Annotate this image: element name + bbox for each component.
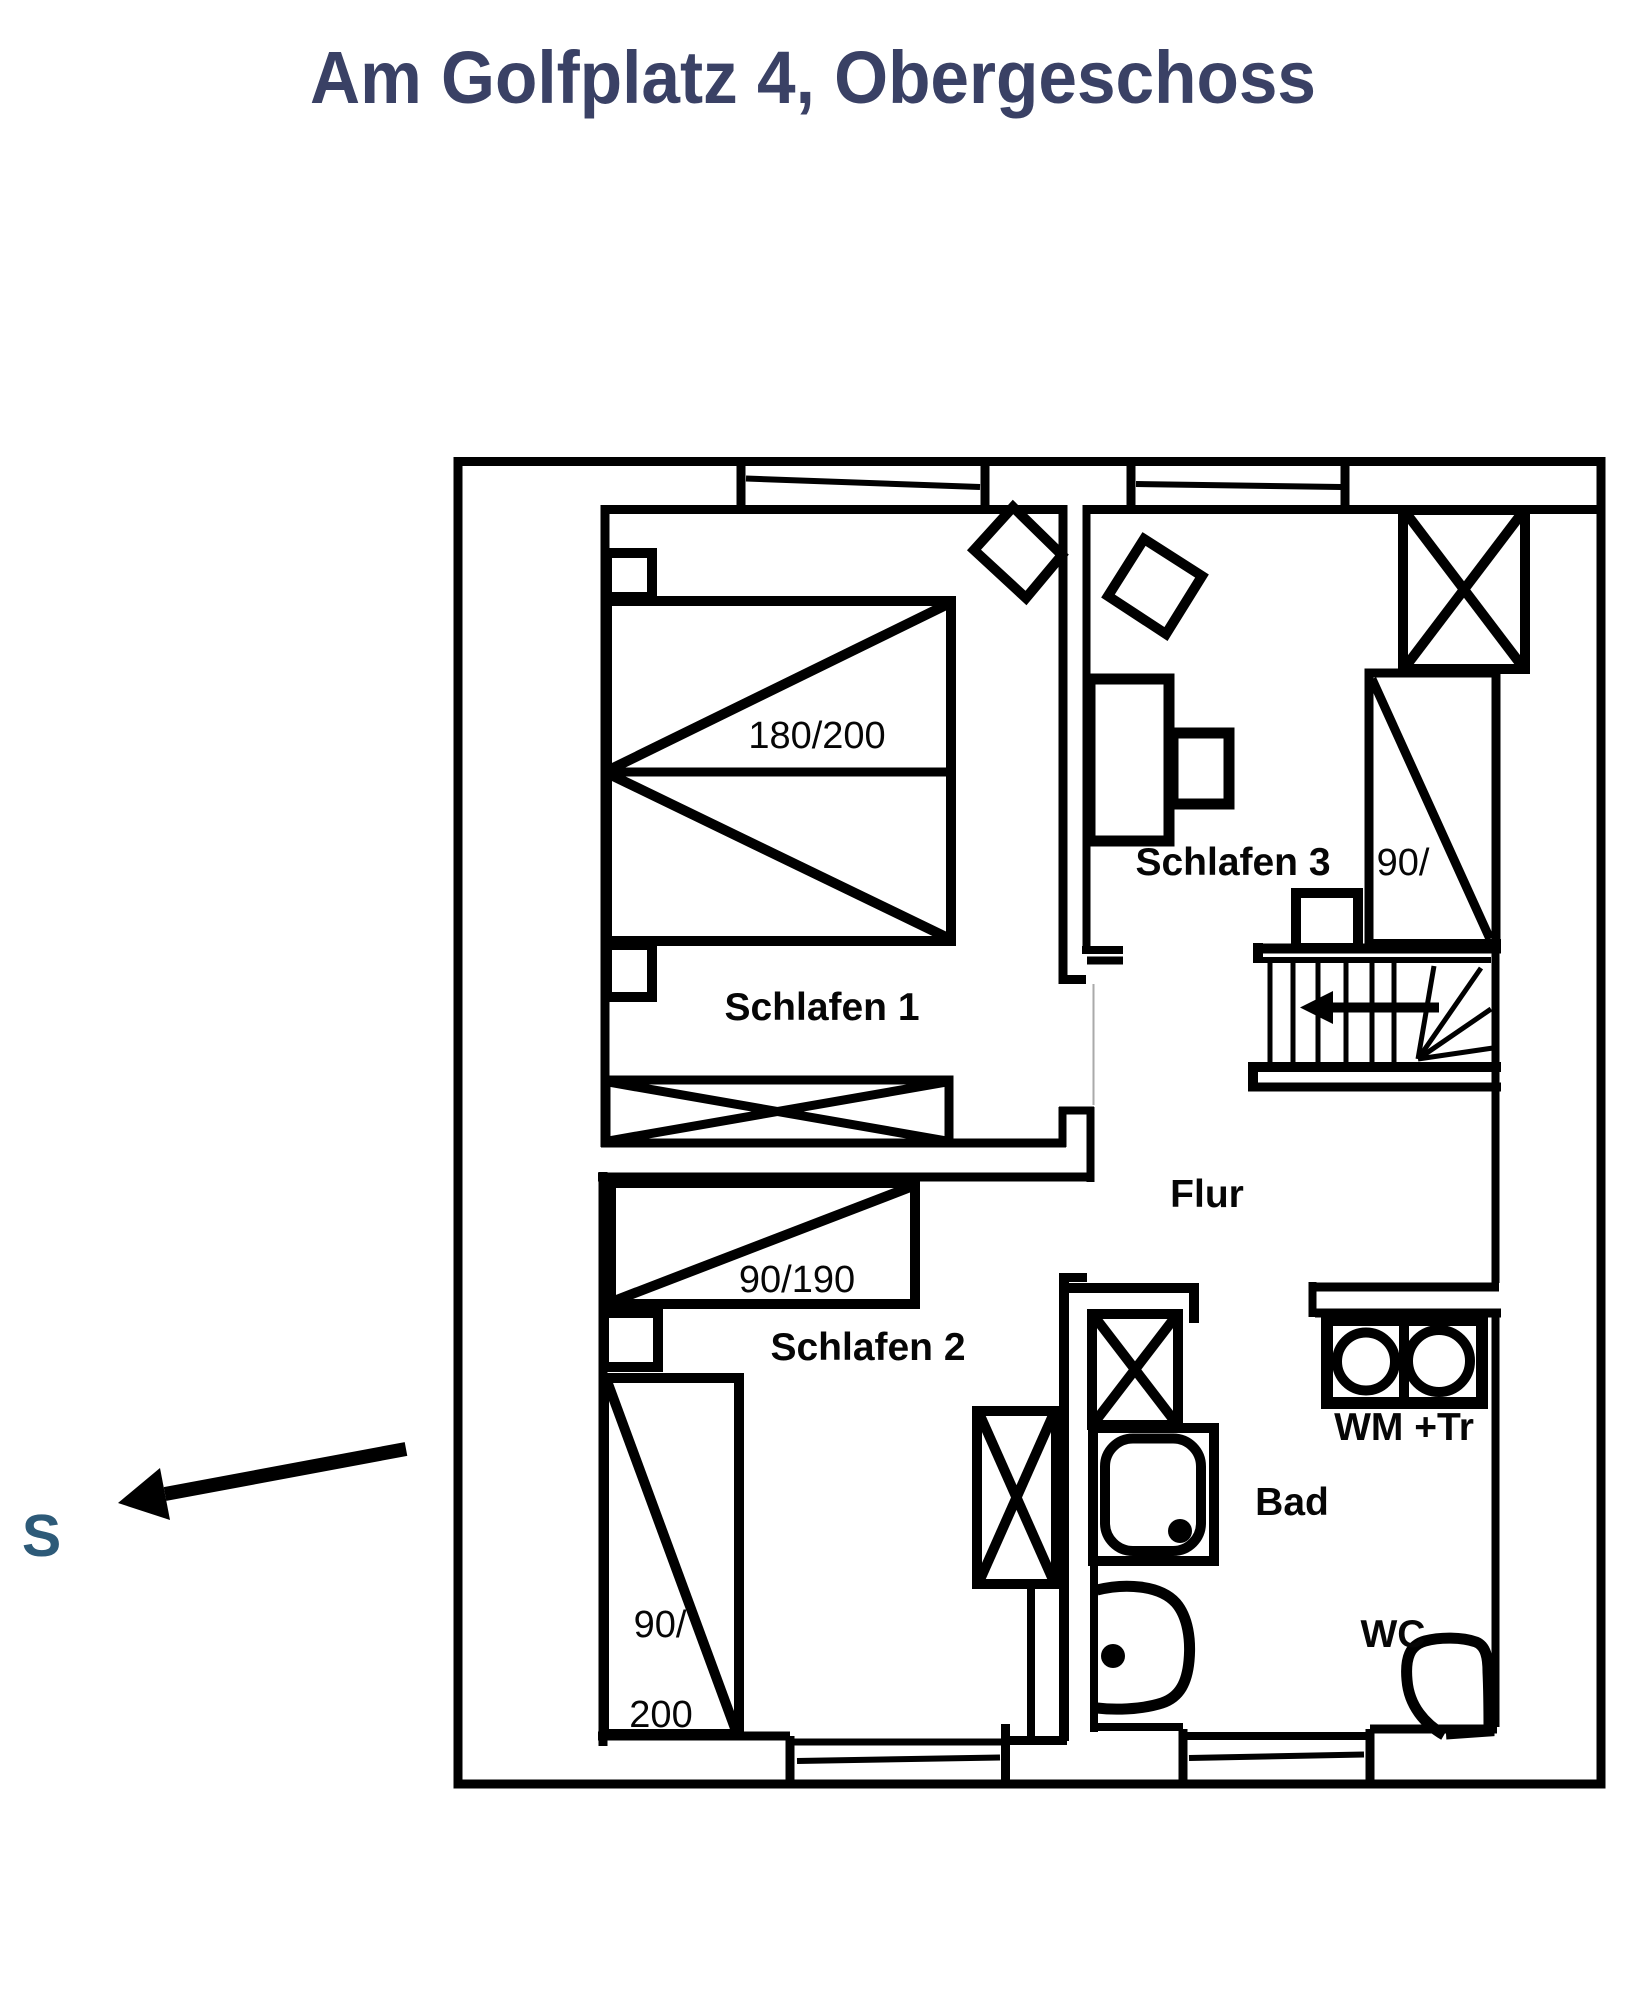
svg-text:Schlafen 3: Schlafen 3: [1135, 841, 1330, 884]
svg-text:Schlafen 1: Schlafen 1: [724, 986, 919, 1029]
svg-text:Schlafen 2: Schlafen 2: [770, 1326, 965, 1369]
svg-text:WM +Tr: WM +Tr: [1334, 1406, 1474, 1449]
svg-text:180/200: 180/200: [748, 715, 885, 757]
svg-text:90/: 90/: [1377, 842, 1430, 884]
svg-text:Am Golfplatz 4, Obergeschoss: Am Golfplatz 4, Obergeschoss: [310, 36, 1316, 119]
svg-text:S: S: [22, 1503, 61, 1569]
svg-text:WC: WC: [1361, 1613, 1426, 1656]
svg-text:200: 200: [629, 1694, 692, 1736]
svg-text:Flur: Flur: [1170, 1173, 1244, 1216]
svg-text:90/190: 90/190: [739, 1259, 855, 1301]
svg-text:90/: 90/: [634, 1604, 687, 1646]
svg-text:Bad: Bad: [1255, 1481, 1329, 1524]
